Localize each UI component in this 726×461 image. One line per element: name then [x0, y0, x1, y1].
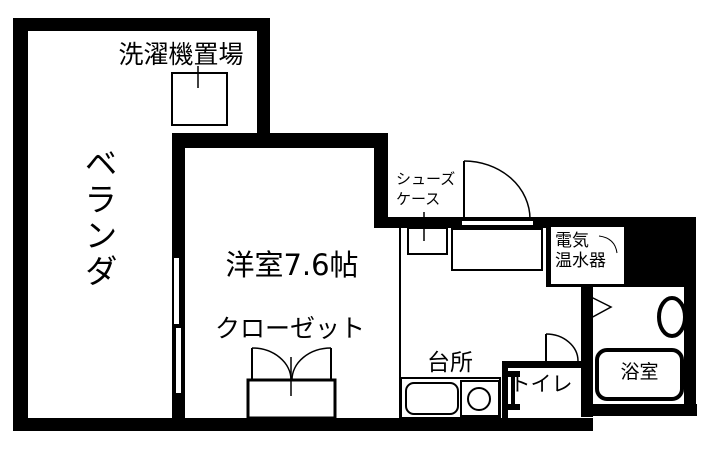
closet-left-door-arc [252, 348, 291, 380]
closet-right-door-arc [292, 348, 331, 380]
western-room-label: 洋室7.6帖 [192, 250, 392, 282]
entry-step [452, 229, 542, 270]
wall-outer-top [13, 18, 270, 31]
bathroom-label: 浴室 [599, 362, 680, 383]
wall-laundry-right [257, 18, 270, 148]
wall-outer-bottom [13, 418, 593, 431]
wall-bathroom-bottom [581, 404, 697, 416]
wall-bathroom-left [581, 287, 593, 417]
laundry-space-label: 洗濯機置場 [108, 41, 254, 69]
closet-label: クローゼット [215, 315, 363, 343]
bathroom-basin [659, 298, 685, 336]
entry-door-swing-arc [464, 161, 530, 219]
kitchen-label: 台所 [419, 351, 481, 376]
veranda-window-pane-1 [174, 258, 179, 324]
wall-toilet-top [502, 361, 583, 368]
veranda-window-pane-2 [176, 328, 181, 393]
shoe-case-label-line2: ケース [396, 189, 455, 209]
wall-room-top [172, 133, 388, 148]
shoe-case-box [408, 228, 447, 254]
veranda-label: ベランダ [74, 146, 116, 306]
wall-outer-left [13, 18, 28, 431]
water-heater-label: 電気 温水器 [552, 231, 627, 272]
wall-room-right-upper [374, 133, 388, 228]
entry-door-threshold [462, 221, 533, 225]
floor-plan: ベランダ 洗濯機置場 洋室7.6帖 クローゼット シューズ ケース 電気 温水器… [0, 0, 726, 461]
shoe-case-label: シューズ ケース [396, 169, 455, 210]
shoe-case-label-line1: シューズ [396, 169, 455, 189]
toilet-door-swing-arc [546, 334, 578, 361]
water-heater-label-line1: 電気 [555, 231, 627, 251]
washing-machine-box [172, 73, 227, 125]
toilet-label: トイレ [505, 373, 577, 396]
water-heater-label-line2: 温水器 [555, 251, 627, 271]
